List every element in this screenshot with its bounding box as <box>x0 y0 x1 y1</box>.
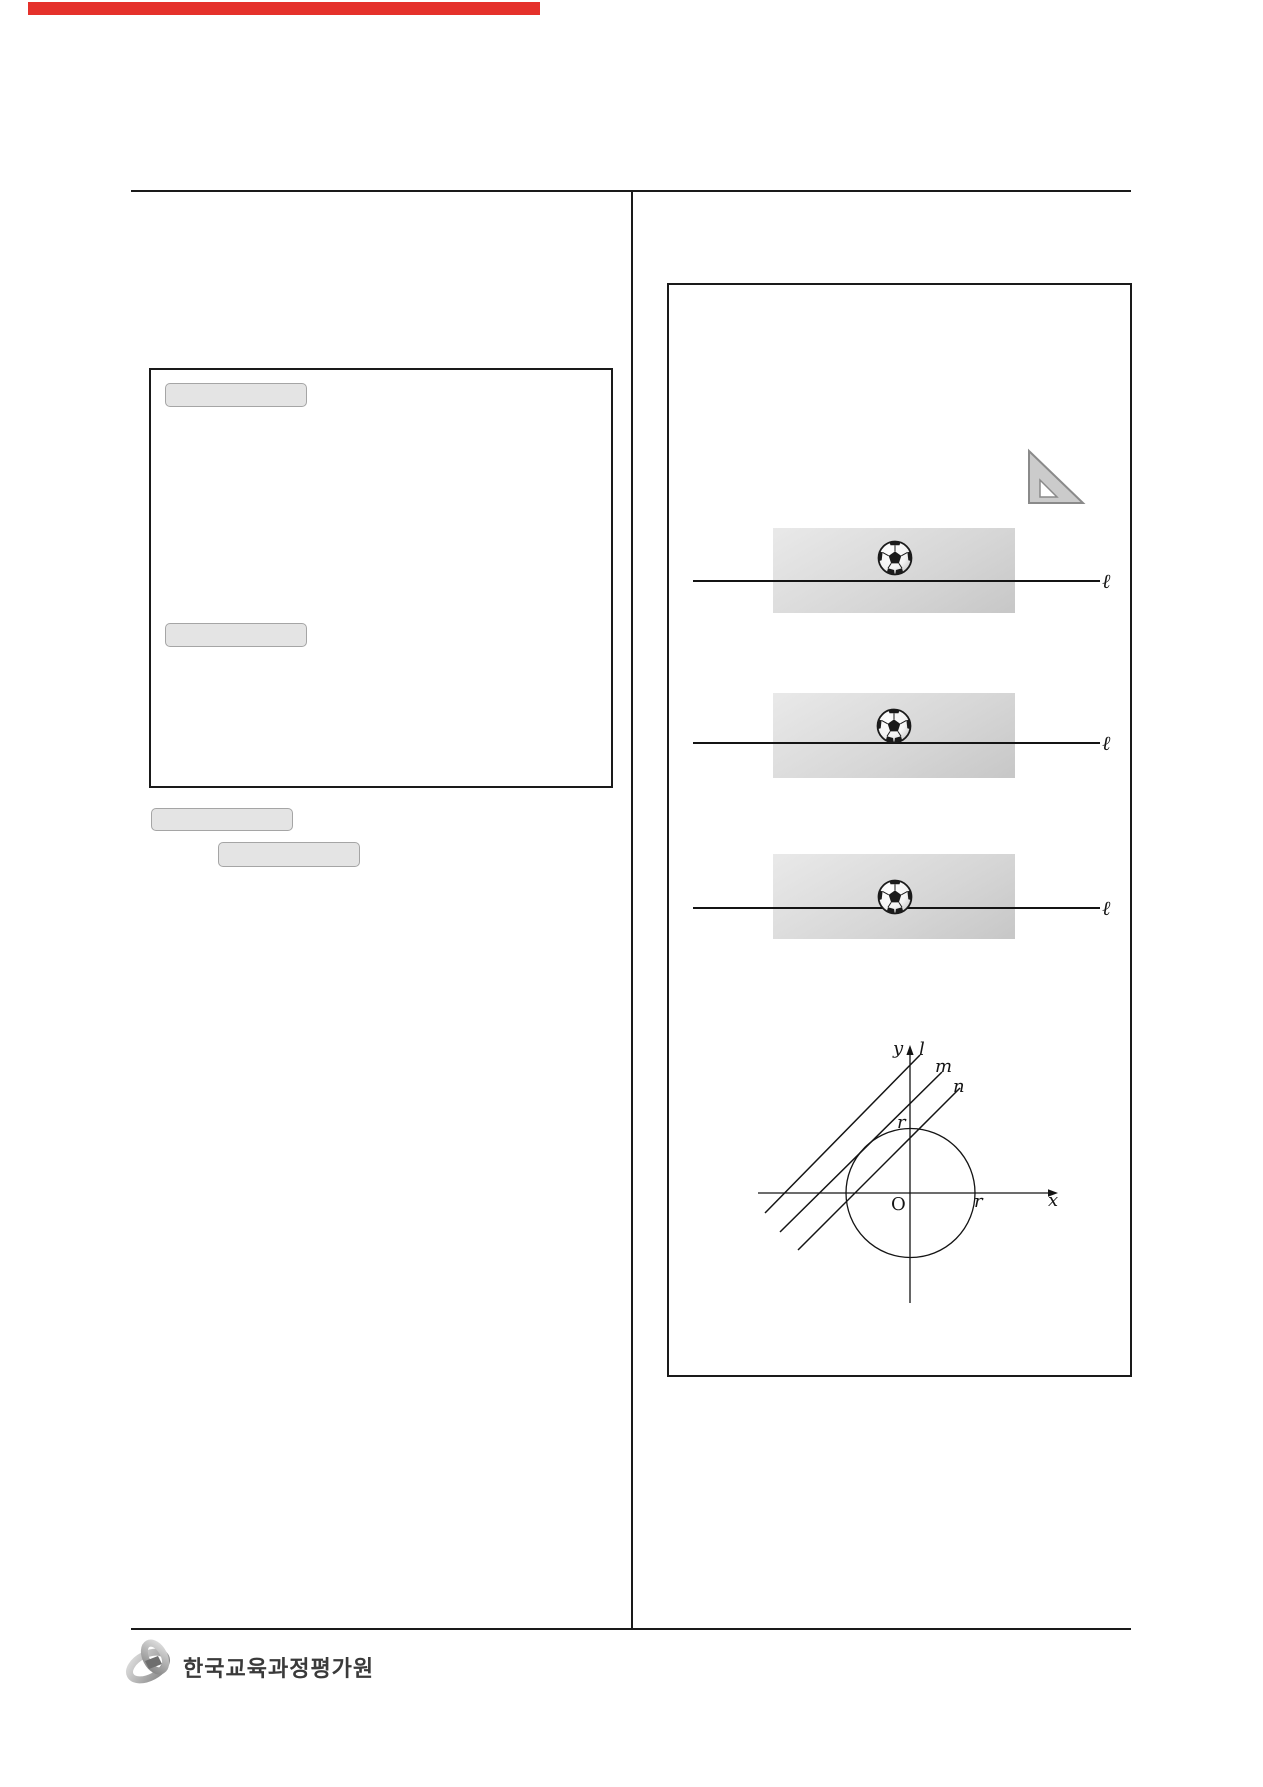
y-axis-arrow <box>906 1045 913 1055</box>
redacted-label-pill <box>165 623 307 647</box>
kice-logo-icon <box>125 1638 179 1688</box>
line-m-label: m <box>935 1058 952 1076</box>
x-axis-label: x <box>1048 1192 1058 1210</box>
soccer-ball-icon <box>877 879 913 915</box>
radius-label-top: r <box>897 1114 906 1132</box>
coordinate-plane-figure <box>740 1025 1070 1315</box>
line-m-tangent <box>780 1072 942 1232</box>
soccer-ball-icon <box>876 708 912 744</box>
set-square-icon <box>1026 448 1086 506</box>
redacted-label-pill <box>218 842 360 867</box>
line-label: ℓ <box>1102 571 1110 591</box>
soccer-ball-icon <box>877 540 913 576</box>
line-label: ℓ <box>1102 898 1110 918</box>
document-page: ℓ ℓ ℓ y l m n r O r x 한국교육과정평가원 <box>0 0 1263 1787</box>
line-l <box>765 1055 920 1213</box>
origin-label: O <box>891 1196 906 1214</box>
line-label: ℓ <box>1102 733 1110 753</box>
redacted-header-bar <box>28 2 540 15</box>
line-l <box>693 580 1100 582</box>
redacted-label-pill <box>151 808 293 831</box>
column-divider <box>631 190 633 1630</box>
y-axis-label: y <box>893 1040 903 1058</box>
line-l-label: l <box>919 1041 925 1059</box>
redacted-label-pill <box>165 383 307 407</box>
footer-rule <box>131 1628 1131 1630</box>
question-box <box>149 368 613 788</box>
line-n-label: n <box>953 1078 965 1096</box>
line-n-secant <box>798 1088 960 1250</box>
radius-label-right: r <box>974 1193 983 1211</box>
institute-name: 한국교육과정평가원 <box>183 1651 374 1683</box>
